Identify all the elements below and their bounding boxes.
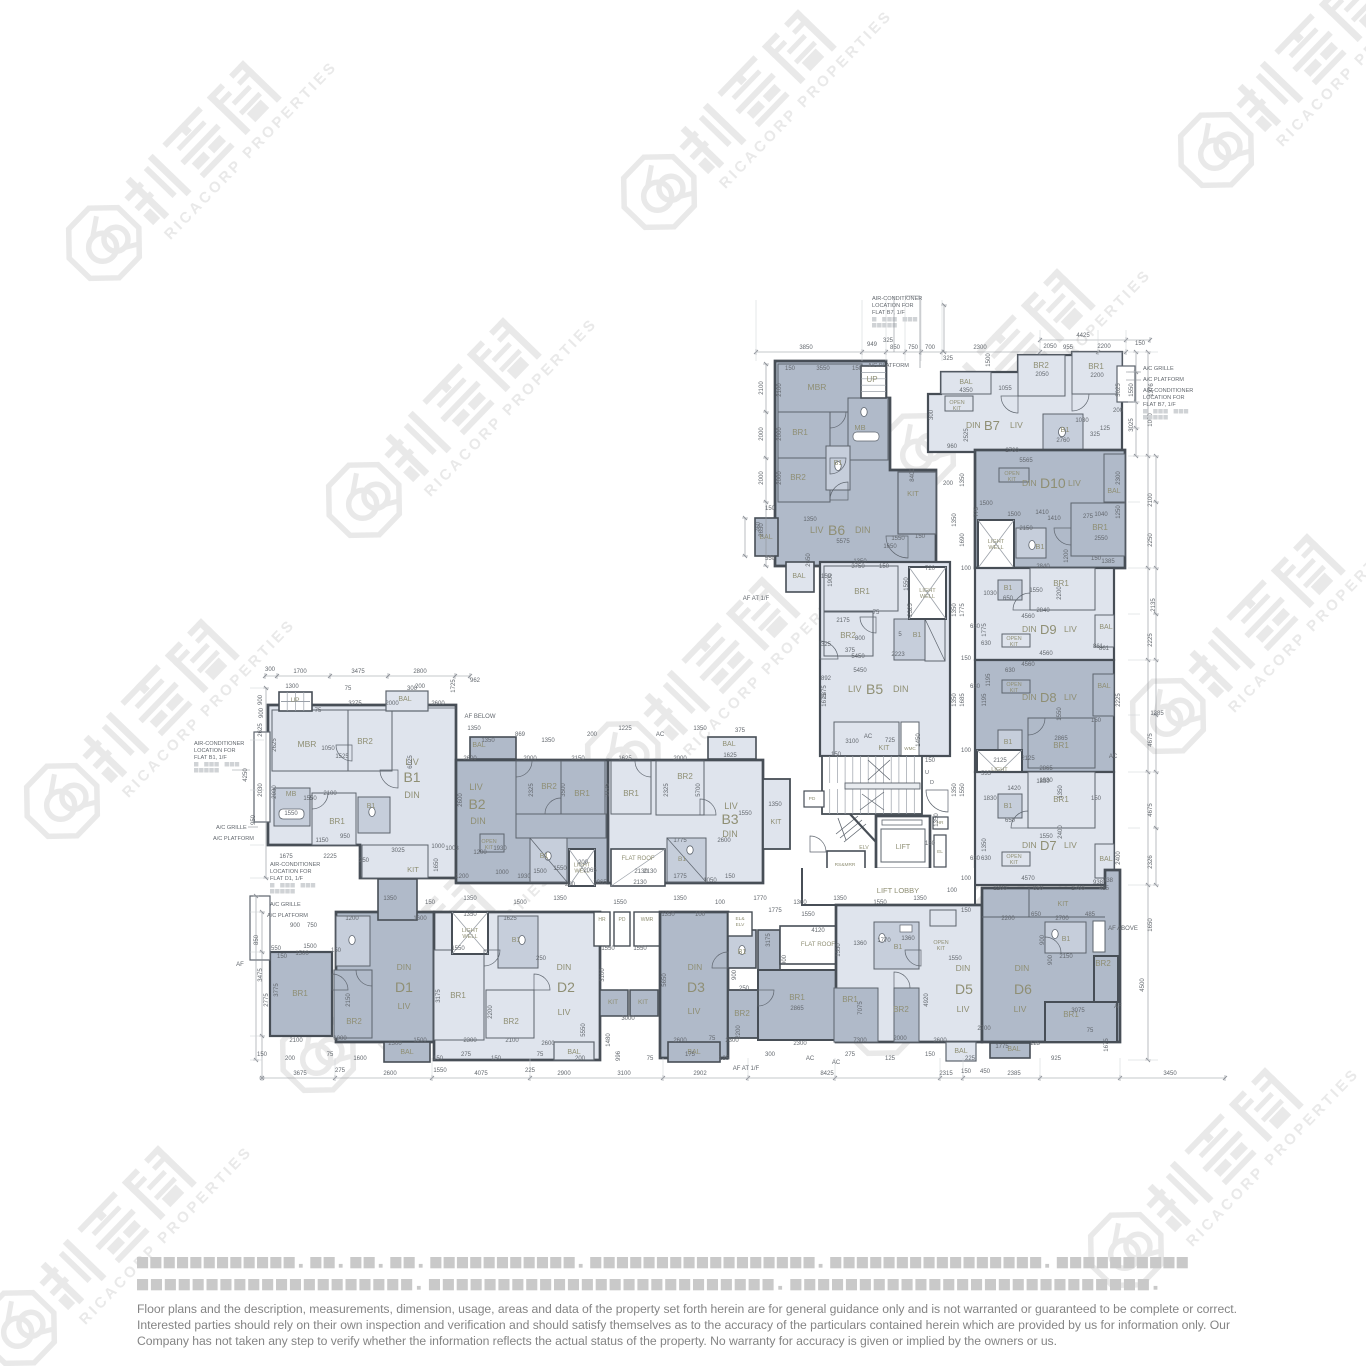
svg-text:BAL: BAL [1099, 624, 1112, 631]
svg-text:AF BELOW: AF BELOW [464, 714, 495, 720]
svg-text:2100: 2100 [1148, 493, 1154, 507]
svg-text:2225: 2225 [1116, 693, 1122, 707]
svg-text:1350: 1350 [467, 726, 481, 732]
svg-text:2600: 2600 [541, 1041, 555, 1047]
svg-text:1550: 1550 [284, 811, 298, 817]
svg-text:WELL: WELL [462, 934, 477, 940]
svg-text:LIV: LIV [810, 525, 824, 535]
svg-text:150: 150 [1091, 718, 1102, 724]
svg-text:2902: 2902 [693, 1071, 707, 1077]
svg-text:450: 450 [980, 1069, 991, 1075]
svg-text:LIV: LIV [1064, 624, 1077, 634]
svg-text:3550: 3550 [816, 366, 830, 372]
svg-text:125: 125 [885, 1056, 896, 1062]
svg-text:150: 150 [852, 366, 863, 372]
svg-text:125: 125 [719, 1056, 730, 1062]
svg-text:BR1: BR1 [1092, 523, 1108, 532]
svg-text:2875: 2875 [822, 685, 828, 699]
svg-text:1420: 1420 [1007, 786, 1021, 792]
svg-text:2600: 2600 [383, 1071, 397, 1077]
svg-text:2326: 2326 [1148, 855, 1154, 869]
svg-text:325: 325 [883, 338, 894, 344]
svg-text:1775: 1775 [768, 908, 782, 914]
svg-text:AF ABOVE: AF ABOVE [1108, 926, 1138, 932]
svg-text:861: 861 [1093, 644, 1104, 650]
svg-text:900: 900 [732, 969, 738, 980]
svg-text:2065: 2065 [583, 868, 597, 874]
svg-text:BR2: BR2 [790, 473, 806, 482]
svg-text:150: 150 [277, 954, 288, 960]
svg-text:900: 900 [1040, 934, 1046, 945]
svg-text:3850: 3850 [799, 345, 813, 351]
svg-text:630: 630 [970, 684, 981, 690]
svg-text:HR: HR [598, 917, 606, 923]
svg-text:1050: 1050 [321, 746, 335, 752]
svg-text:2200: 2200 [1001, 916, 1015, 922]
svg-text:BR1: BR1 [792, 428, 808, 437]
svg-text:B1: B1 [1004, 803, 1013, 810]
svg-text:2200: 2200 [488, 1005, 494, 1019]
svg-text:3100: 3100 [617, 1071, 631, 1077]
svg-text:3475: 3475 [258, 968, 264, 982]
svg-text:5450: 5450 [853, 668, 867, 674]
svg-text:150: 150 [765, 506, 776, 512]
svg-text:AF: AF [1114, 1004, 1122, 1010]
svg-text:2625: 2625 [272, 738, 278, 752]
svg-text:WMR: WMR [641, 917, 654, 923]
svg-text:1410: 1410 [1047, 516, 1061, 522]
svg-text:DIN: DIN [404, 790, 420, 800]
svg-text:AC: AC [806, 1056, 815, 1062]
svg-text:D9: D9 [1040, 622, 1057, 637]
svg-text:2000: 2000 [385, 701, 399, 707]
svg-text:75: 75 [537, 1052, 544, 1058]
svg-text:1195: 1195 [982, 693, 988, 707]
svg-text:100: 100 [695, 912, 706, 918]
svg-text:2100: 2100 [289, 1038, 303, 1044]
svg-text:LIV: LIV [469, 782, 483, 792]
svg-text:150: 150 [961, 1069, 972, 1075]
svg-text:BR2: BR2 [503, 1017, 519, 1026]
svg-text:5450: 5450 [851, 654, 865, 660]
svg-text:B1: B1 [1060, 425, 1069, 434]
svg-text:EL&: EL& [735, 916, 745, 922]
svg-text:2100: 2100 [505, 1038, 519, 1044]
svg-text:1500: 1500 [303, 944, 317, 950]
svg-text:8425: 8425 [820, 1071, 834, 1077]
svg-text:1550: 1550 [553, 866, 567, 872]
svg-text:B1: B1 [1062, 936, 1071, 943]
svg-text:2600: 2600 [673, 1038, 687, 1044]
svg-text:1675: 1675 [1104, 1038, 1110, 1052]
svg-text:UP: UP [866, 375, 877, 384]
svg-text:200: 200 [415, 684, 426, 690]
svg-text:LIV: LIV [1064, 840, 1077, 850]
svg-text:1350: 1350 [463, 912, 477, 918]
svg-text:DIN: DIN [1022, 478, 1037, 488]
svg-text:AC: AC [864, 734, 873, 740]
svg-text:LIV: LIV [558, 1007, 571, 1017]
svg-text:B1: B1 [367, 803, 376, 810]
svg-text:2130: 2130 [633, 880, 647, 886]
svg-text:AC: AC [656, 732, 665, 738]
svg-text:1350: 1350 [982, 838, 988, 852]
svg-text:B1: B1 [738, 949, 747, 956]
svg-text:100: 100 [715, 900, 726, 906]
svg-text:LIV: LIV [848, 684, 862, 694]
svg-text:AC: AC [1109, 754, 1118, 760]
svg-text:1360: 1360 [901, 936, 915, 942]
svg-text:1550: 1550 [451, 946, 465, 952]
svg-text:900: 900 [258, 694, 264, 705]
svg-text:1200: 1200 [455, 874, 469, 880]
svg-text:3500: 3500 [561, 783, 567, 797]
svg-text:4560: 4560 [1039, 651, 1053, 657]
svg-text:3475: 3475 [351, 669, 365, 675]
svg-text:962: 962 [470, 678, 481, 684]
svg-text:1030: 1030 [983, 591, 997, 597]
svg-text:MBR: MBR [298, 739, 317, 749]
svg-text:4075: 4075 [474, 1071, 488, 1077]
svg-text:4675: 4675 [1148, 803, 1154, 817]
svg-text:KIT: KIT [937, 946, 946, 952]
svg-text:2300: 2300 [463, 1038, 477, 1044]
svg-text:550: 550 [765, 556, 776, 562]
svg-text:150: 150 [257, 1052, 268, 1058]
svg-text:B5: B5 [866, 681, 883, 697]
svg-text:2760: 2760 [1056, 438, 1070, 444]
svg-text:2065: 2065 [593, 880, 607, 886]
svg-text:150: 150 [1091, 796, 1102, 802]
svg-text:ELV: ELV [859, 845, 869, 851]
svg-text:1350: 1350 [481, 738, 495, 744]
svg-text:1550: 1550 [948, 956, 962, 962]
svg-text:1195: 1195 [986, 673, 992, 687]
svg-text:1410: 1410 [1035, 510, 1049, 516]
svg-text:BAL: BAL [567, 1049, 580, 1056]
svg-text:850: 850 [254, 934, 260, 945]
svg-text:300: 300 [265, 667, 276, 673]
svg-text:938: 938 [1103, 878, 1114, 884]
svg-text:2125: 2125 [1021, 756, 1035, 762]
svg-text:3075: 3075 [1071, 1008, 1085, 1014]
svg-text:FLAT ROOF: FLAT ROOF [801, 941, 835, 948]
svg-text:A/C GRILLE: A/C GRILLE [1143, 366, 1174, 372]
svg-text:3025: 3025 [391, 848, 405, 854]
svg-text:3175: 3175 [605, 783, 611, 797]
svg-text:2525: 2525 [964, 428, 970, 442]
svg-text:2200: 2200 [1097, 344, 1111, 350]
svg-text:1775: 1775 [982, 623, 988, 637]
svg-text:150: 150 [961, 908, 972, 914]
svg-text:2125: 2125 [993, 758, 1007, 764]
svg-text:BAL: BAL [1097, 683, 1110, 690]
svg-text:2600: 2600 [458, 793, 464, 807]
svg-text:2130: 2130 [643, 869, 657, 875]
svg-text:BR1: BR1 [329, 817, 345, 826]
svg-text:1000: 1000 [495, 870, 509, 876]
svg-text:B7: B7 [984, 418, 1000, 433]
svg-text:MBR: MBR [808, 382, 827, 392]
svg-text:A/C PLATFORM: A/C PLATFORM [213, 836, 254, 842]
svg-text:75: 75 [345, 686, 352, 692]
svg-text:2400: 2400 [1116, 851, 1122, 865]
svg-text:725: 725 [885, 738, 896, 744]
svg-text:U: U [925, 770, 929, 776]
svg-text:DIN: DIN [893, 684, 909, 694]
svg-text:1003: 1003 [445, 846, 459, 852]
svg-text:1300: 1300 [285, 684, 299, 690]
svg-text:1685: 1685 [960, 693, 966, 707]
svg-text:2200: 2200 [1057, 586, 1063, 600]
svg-text:150: 150 [785, 366, 796, 372]
svg-text:DIN: DIN [1015, 963, 1030, 973]
svg-text:2225: 2225 [323, 854, 337, 860]
svg-text:900: 900 [259, 707, 265, 718]
svg-text:AIR-CONDITIONER: AIR-CONDITIONER [1143, 388, 1193, 394]
svg-text:2050: 2050 [1035, 372, 1049, 378]
svg-text:850: 850 [890, 345, 901, 351]
svg-text:FLAT D1, 1/F: FLAT D1, 1/F [270, 876, 304, 882]
svg-text:2300: 2300 [1116, 471, 1122, 485]
svg-text:D5: D5 [955, 981, 973, 997]
svg-text:3025: 3025 [1116, 383, 1122, 397]
svg-text:1525: 1525 [335, 754, 349, 760]
svg-text:325: 325 [943, 356, 954, 362]
svg-text:2000: 2000 [777, 427, 783, 441]
svg-text:1550: 1550 [873, 900, 887, 906]
svg-text:KIT: KIT [407, 865, 419, 874]
svg-text:1690: 1690 [960, 533, 966, 547]
svg-text:D7: D7 [1040, 838, 1057, 853]
svg-text:DIN: DIN [470, 816, 486, 826]
svg-text:630: 630 [970, 624, 981, 630]
svg-text:LIV: LIV [724, 801, 738, 811]
svg-text:950: 950 [251, 814, 257, 825]
svg-text:1500: 1500 [413, 1038, 427, 1044]
svg-text:KIT: KIT [1010, 642, 1019, 648]
svg-text:1770: 1770 [753, 896, 767, 902]
svg-text:1830: 1830 [1039, 778, 1053, 784]
svg-text:D3: D3 [687, 979, 705, 995]
svg-text:275: 275 [845, 1052, 856, 1058]
svg-text:A/C PLATFORM: A/C PLATFORM [1143, 377, 1184, 383]
svg-text:300: 300 [765, 1052, 776, 1058]
svg-text:1625: 1625 [503, 916, 517, 922]
svg-text:1550: 1550 [303, 796, 317, 802]
svg-text:2135: 2135 [1151, 598, 1157, 612]
svg-text:D: D [930, 780, 934, 786]
svg-text:8400: 8400 [910, 468, 916, 482]
svg-text:1350: 1350 [952, 783, 958, 797]
svg-text:2250: 2250 [1148, 533, 1154, 547]
svg-text:2600: 2600 [431, 701, 445, 707]
svg-text:A/C GRILLE: A/C GRILLE [216, 825, 247, 831]
svg-text:4120: 4120 [811, 928, 825, 934]
svg-text:150: 150 [1091, 556, 1102, 562]
svg-text:1900: 1900 [828, 573, 834, 587]
svg-text:BR1: BR1 [574, 789, 590, 798]
svg-text:1550: 1550 [1029, 588, 1043, 594]
svg-text:2175: 2175 [836, 618, 850, 624]
svg-text:200: 200 [565, 882, 576, 888]
svg-text:LIFT: LIFT [896, 844, 911, 851]
svg-text:1350: 1350 [952, 603, 958, 617]
svg-text:3175: 3175 [766, 933, 772, 947]
svg-text:1500: 1500 [295, 951, 309, 957]
svg-text:MB: MB [854, 423, 865, 432]
svg-text:AIR-CONDITIONER: AIR-CONDITIONER [194, 741, 244, 747]
svg-text:FLAT B1, 1/F: FLAT B1, 1/F [194, 755, 227, 761]
svg-text:2600: 2600 [463, 756, 477, 762]
svg-text:750: 750 [307, 923, 318, 929]
svg-text:275: 275 [1083, 514, 1094, 520]
svg-text:1350: 1350 [768, 802, 782, 808]
svg-text:1480: 1480 [606, 1033, 612, 1047]
svg-text:1350: 1350 [463, 896, 477, 902]
svg-text:150: 150 [725, 874, 736, 880]
svg-text:EL: EL [937, 849, 943, 855]
svg-text:650: 650 [1003, 596, 1014, 602]
svg-text:2150: 2150 [1059, 954, 1073, 960]
svg-text:1550: 1550 [613, 900, 627, 906]
svg-text:250: 250 [739, 986, 750, 992]
svg-text:1550: 1550 [738, 811, 752, 817]
svg-text:1775: 1775 [995, 1044, 1009, 1050]
svg-text:KIT: KIT [879, 745, 891, 752]
svg-text:1550: 1550 [1039, 834, 1053, 840]
svg-text:6025: 6025 [408, 755, 414, 769]
svg-text:2150: 2150 [346, 993, 352, 1007]
svg-text:B1: B1 [403, 769, 420, 785]
svg-text:1350: 1350 [833, 896, 847, 902]
svg-text:325: 325 [821, 642, 832, 648]
svg-text:B1: B1 [540, 853, 549, 860]
svg-text:LOCATION FOR: LOCATION FOR [194, 748, 236, 754]
svg-text:AIR-CONDITIONER: AIR-CONDITIONER [270, 862, 320, 868]
svg-text:150: 150 [925, 758, 936, 764]
svg-text:1830: 1830 [983, 796, 997, 802]
svg-text:BR1: BR1 [789, 993, 805, 1002]
svg-text:BAL: BAL [959, 379, 972, 386]
svg-text:4500: 4500 [1140, 978, 1146, 992]
svg-text:2325: 2325 [908, 603, 914, 617]
svg-text:4675: 4675 [1148, 733, 1154, 747]
svg-text:200: 200 [943, 481, 954, 487]
svg-text:4425: 4425 [1076, 333, 1090, 339]
svg-text:75: 75 [709, 1036, 716, 1042]
svg-text:1500: 1500 [533, 869, 547, 875]
svg-text:1000: 1000 [431, 844, 445, 850]
svg-text:1350: 1350 [934, 813, 940, 827]
svg-text:150: 150 [1135, 341, 1146, 347]
svg-text:2300: 2300 [793, 1041, 807, 1047]
svg-text:5565: 5565 [1019, 458, 1033, 464]
svg-text:1550: 1550 [891, 536, 905, 542]
svg-text:KIT: KIT [907, 489, 919, 498]
svg-text:DIN: DIN [1022, 692, 1037, 702]
svg-text:DIN: DIN [688, 962, 703, 972]
svg-text:BR1: BR1 [1053, 741, 1069, 750]
svg-text:AF AT 1/F: AF AT 1/F [733, 1066, 760, 1072]
svg-text:150: 150 [433, 1056, 444, 1062]
svg-text:775: 775 [974, 506, 980, 517]
svg-text:2150: 2150 [571, 756, 585, 762]
svg-text:AC: AC [832, 1060, 841, 1066]
svg-text:892: 892 [821, 676, 832, 682]
svg-text:100: 100 [947, 888, 958, 894]
svg-text:B1: B1 [834, 460, 843, 467]
svg-text:1000: 1000 [333, 1036, 347, 1042]
svg-text:1600: 1600 [413, 916, 427, 922]
svg-text:1770: 1770 [877, 938, 891, 944]
svg-text:MB: MB [286, 791, 297, 798]
svg-text:630: 630 [981, 641, 992, 647]
svg-text:3175: 3175 [436, 989, 442, 1003]
svg-text:LOCATION FOR: LOCATION FOR [1143, 395, 1185, 401]
svg-text:WMC: WMC [904, 746, 916, 751]
svg-text:1030: 1030 [1075, 418, 1089, 424]
svg-text:KIT: KIT [1010, 688, 1019, 694]
svg-text:1050: 1050 [703, 878, 717, 884]
svg-text:2840: 2840 [1036, 564, 1050, 570]
svg-text:DIN: DIN [855, 525, 871, 535]
svg-text:1500: 1500 [1007, 512, 1021, 518]
svg-text:5575: 5575 [836, 539, 850, 545]
svg-text:2650: 2650 [759, 523, 765, 537]
svg-text:2100: 2100 [759, 381, 765, 395]
svg-text:1600: 1600 [353, 1056, 367, 1062]
svg-text:BR2: BR2 [893, 1005, 909, 1014]
svg-text:AIR-CONDITIONER: AIR-CONDITIONER [872, 296, 922, 302]
svg-text:KIT: KIT [1010, 860, 1019, 866]
svg-text:650: 650 [1031, 912, 1042, 918]
svg-text:2650: 2650 [806, 553, 812, 567]
svg-text:2625: 2625 [258, 723, 264, 737]
svg-text:1385: 1385 [1150, 711, 1164, 717]
svg-text:2000: 2000 [759, 471, 765, 485]
svg-text:KIT: KIT [771, 819, 783, 826]
svg-text:1200: 1200 [473, 850, 487, 856]
svg-text:150: 150 [961, 656, 972, 662]
svg-text:1150: 1150 [316, 838, 330, 844]
svg-text:2030: 2030 [258, 783, 264, 797]
svg-text:4560: 4560 [1021, 614, 1035, 620]
svg-text:BAL: BAL [400, 1049, 413, 1056]
svg-text:1550: 1550 [433, 1068, 447, 1074]
svg-text:1550: 1550 [836, 943, 842, 957]
svg-text:2325: 2325 [664, 783, 670, 797]
svg-text:535: 535 [981, 771, 992, 777]
svg-text:955: 955 [1063, 345, 1074, 351]
svg-text:AF AT 1/F: AF AT 1/F [743, 596, 770, 602]
svg-text:2030: 2030 [272, 785, 278, 799]
svg-text:1500: 1500 [513, 900, 527, 906]
svg-text:BR1: BR1 [292, 989, 308, 998]
svg-text:1385: 1385 [1101, 559, 1115, 565]
svg-text:FLAT B7, 1/F: FLAT B7, 1/F [872, 310, 905, 316]
svg-text:AF: AF [236, 962, 244, 968]
svg-text:650: 650 [1033, 886, 1044, 892]
svg-text:1000: 1000 [1148, 413, 1154, 427]
svg-text:2775: 2775 [264, 993, 270, 1007]
svg-text:650: 650 [1005, 818, 1016, 824]
svg-text:BR2: BR2 [346, 1017, 362, 1026]
svg-text:2700: 2700 [1055, 916, 1069, 922]
svg-text:1500: 1500 [979, 501, 993, 507]
svg-text:D2: D2 [557, 979, 575, 995]
svg-text:630: 630 [1005, 668, 1016, 674]
